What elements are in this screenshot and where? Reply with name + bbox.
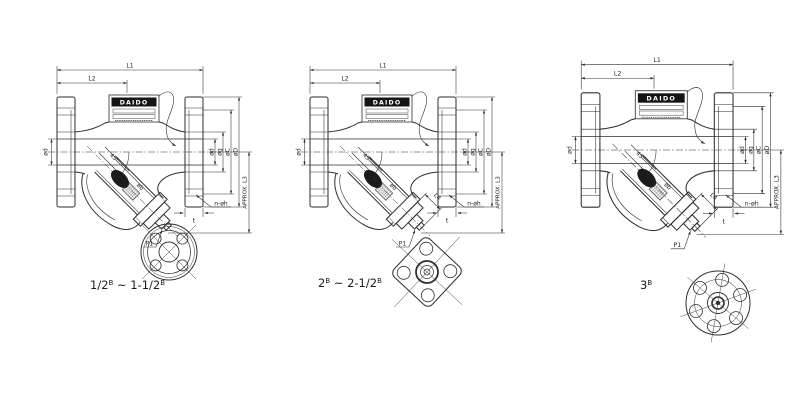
drawing-page: DAIDO L1 L2 ød ød øg øC øD APPROX. L3 n-… — [0, 0, 800, 400]
end-view-square-4bolt — [359, 204, 495, 340]
technical-drawing-canvas: DAIDO L1 L2 ød ød øg øC øD APPROX. L3 n-… — [0, 0, 800, 400]
caption-sup: B — [160, 279, 165, 287]
l4-dim-medium — [417, 192, 442, 225]
caption-sup: B — [647, 279, 652, 287]
caption-small-sizes: 1/2B ~ 1-1/2B — [90, 278, 165, 292]
end-view-round-6bolt — [680, 264, 755, 343]
caption-large-size: 3B — [640, 278, 652, 292]
caption-base: 3 — [640, 278, 647, 292]
caption-base: 2 — [318, 276, 325, 290]
side-view-small — [43, 63, 253, 248]
caption-sup: B — [377, 277, 382, 285]
side-view-large — [566, 57, 784, 249]
caption-base: 1/2 — [90, 278, 109, 292]
end-view-round-4bolt — [141, 224, 197, 280]
centerline-axes — [359, 204, 495, 340]
caption-range: ~ 1-1/2 — [113, 278, 160, 292]
caption-medium-sizes: 2B ~ 2-1/2B — [318, 276, 382, 290]
side-view-medium — [296, 63, 506, 248]
center-hub-dot — [716, 301, 720, 305]
caption-range: ~ 2-1/2 — [330, 276, 377, 290]
